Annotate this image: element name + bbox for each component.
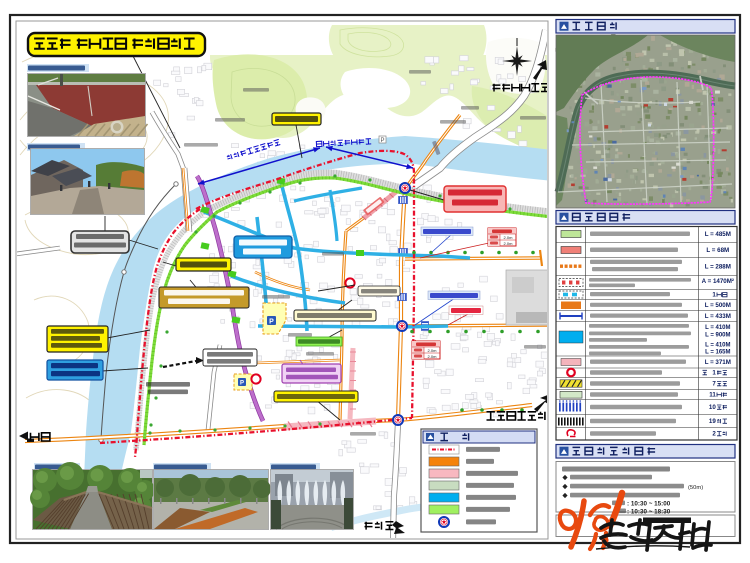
svg-text:L = 165M: L = 165M	[705, 350, 730, 356]
svg-text:2.0m: 2.0m	[504, 235, 514, 240]
svg-text:2.0m: 2.0m	[428, 348, 438, 353]
svg-text:L = 500M: L = 500M	[705, 302, 731, 309]
svg-text:P: P	[240, 381, 244, 387]
svg-text:2: 2	[712, 431, 716, 438]
svg-text:2.0m: 2.0m	[428, 354, 438, 359]
svg-text:L = 410M: L = 410M	[705, 343, 730, 349]
svg-text:: 10:30 ~ 18:30: : 10:30 ~ 18:30	[627, 509, 671, 516]
svg-text:A = 1470M²: A = 1470M²	[702, 278, 734, 285]
svg-text:7: 7	[712, 381, 716, 388]
svg-text:: 10:30 ~ 15:00: : 10:30 ~ 15:00	[627, 501, 671, 508]
svg-text:L = 288M: L = 288M	[705, 264, 731, 271]
svg-text:L = 433M: L = 433M	[705, 313, 731, 320]
svg-text:L = 485M: L = 485M	[705, 231, 731, 238]
svg-text:2.0m: 2.0m	[504, 241, 514, 246]
svg-text:1: 1	[712, 292, 716, 299]
svg-text:P: P	[269, 319, 274, 326]
svg-text:11: 11	[709, 392, 716, 399]
svg-text:10: 10	[709, 404, 716, 411]
svg-text:(50m): (50m)	[688, 485, 703, 491]
svg-text:L = 410M: L = 410M	[705, 325, 730, 331]
svg-text:P: P	[380, 138, 384, 144]
svg-text:L = 68M: L = 68M	[706, 247, 729, 254]
svg-text:L = 900M: L = 900M	[705, 333, 730, 339]
svg-text:19: 19	[709, 418, 716, 425]
svg-text:L = 371M: L = 371M	[705, 359, 731, 366]
svg-text:1: 1	[712, 370, 716, 377]
